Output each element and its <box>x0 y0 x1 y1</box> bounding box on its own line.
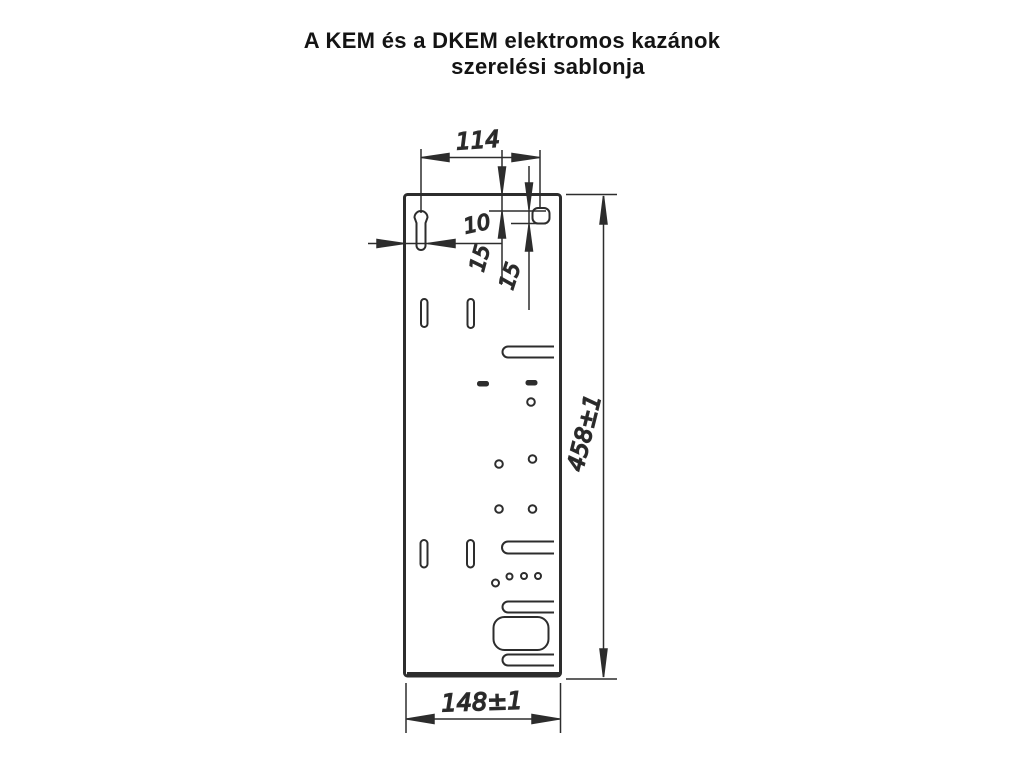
arrowhead-up-icon <box>600 196 607 224</box>
dim-label-114: 114 <box>455 127 501 156</box>
arrowhead-right-icon <box>532 715 559 724</box>
mounting-template-drawing: 114 10 15 1 <box>0 0 1024 768</box>
dash-slot-left <box>478 382 488 386</box>
dim-plate-width-148: 148±1 <box>406 683 561 733</box>
arrowhead-left-icon <box>407 715 434 724</box>
dim-label-width: 148±1 <box>441 687 523 718</box>
arrowhead-down-icon <box>499 167 506 193</box>
dim-plate-height-458: 458±1 <box>563 195 617 680</box>
arrowhead-down-icon <box>600 649 607 677</box>
dim-label-height: 458±1 <box>563 392 607 474</box>
arrowhead-left-icon <box>422 154 449 162</box>
arrowhead-right-icon <box>512 154 539 162</box>
arrowhead-right-icon <box>377 240 404 248</box>
dash-slot-right <box>527 381 537 385</box>
page: A KEM és a DKEM elektromos kazánok szere… <box>0 0 1024 768</box>
